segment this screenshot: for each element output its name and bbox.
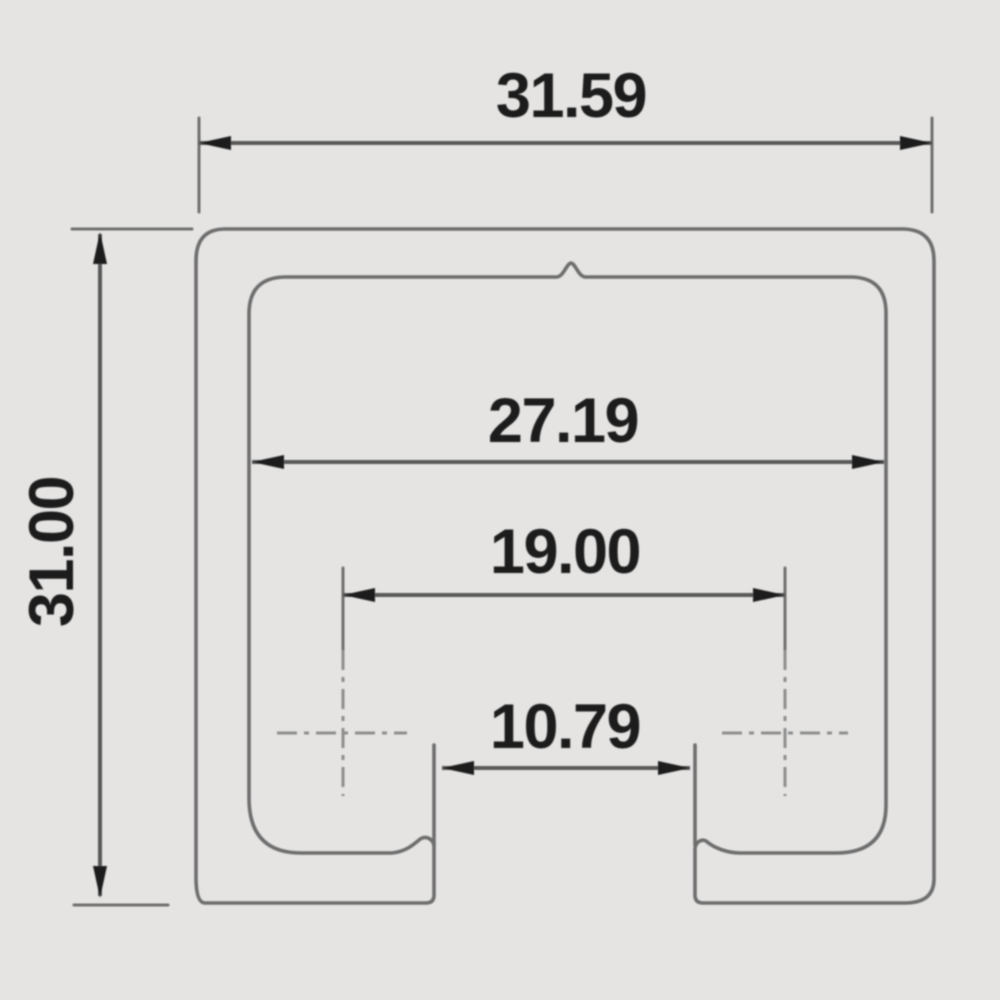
arrow-slot-width-left [442,761,474,775]
arrow-inner-width-right [852,455,884,469]
arrow-center-spacing-right [753,588,785,602]
label-outer-width: 31.59 [496,61,646,131]
arrow-slot-width-right [658,761,690,775]
arrow-overall-height-bottom [93,866,107,898]
arrow-inner-width-left [252,455,284,469]
drawing-canvas: 31.59 31.00 27.19 19.00 10.79 [0,0,1000,1000]
arrow-overall-height-top [93,232,107,264]
label-slot-width: 10.79 [490,692,640,762]
technical-drawing: 31.59 31.00 27.19 19.00 10.79 [0,0,1000,1000]
dimension-labels: 31.59 31.00 27.19 19.00 10.79 [17,61,646,762]
label-overall-height: 31.00 [17,477,87,627]
extension-lines [72,118,932,905]
arrow-outer-width-right [900,136,932,150]
arrow-center-spacing-left [343,588,375,602]
arrow-outer-width-left [199,136,231,150]
label-inner-width: 27.19 [488,386,638,456]
label-center-spacing: 19.00 [490,517,640,587]
